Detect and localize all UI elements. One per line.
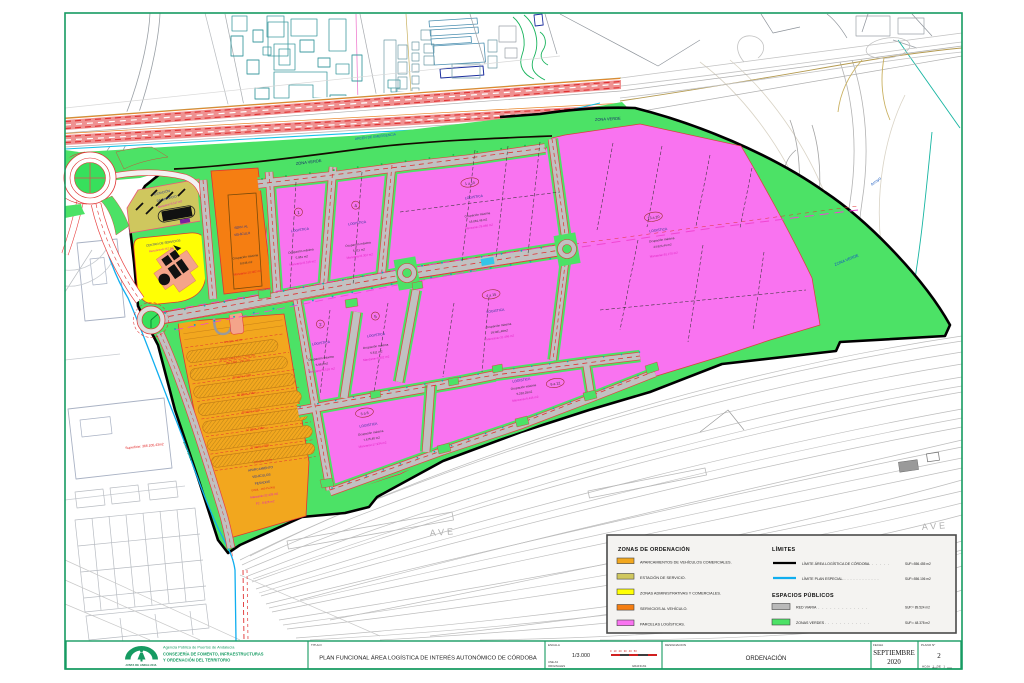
svg-text:APARCAMIENTOS DE VEHÍCULOS COM: APARCAMIENTOS DE VEHÍCULOS COMERCIALES. bbox=[640, 561, 732, 565]
svg-text:PLAN FUNCIONAL ÁREA LOGÍSTICA: PLAN FUNCIONAL ÁREA LOGÍSTICA DE INTERÉS… bbox=[319, 655, 537, 662]
svg-text:ESCALA: ESCALA bbox=[548, 643, 560, 647]
svg-text:SUP.= 89.524 m2: SUP.= 89.524 m2 bbox=[905, 606, 930, 610]
svg-text:ZONAS DE ORDENACIÓN: ZONAS DE ORDENACIÓN bbox=[618, 545, 690, 553]
svg-text:ORDENACIÓN: ORDENACIÓN bbox=[746, 655, 787, 662]
svg-text:2: 2 bbox=[937, 652, 941, 660]
svg-text:DESIGNACION: DESIGNACION bbox=[665, 643, 686, 647]
svg-text:CONSEJERÍA DE FOMENTO, INFRAES: CONSEJERÍA DE FOMENTO, INFRAESTRUCTURAS bbox=[163, 652, 264, 657]
svg-text:AVE: AVE bbox=[921, 520, 948, 532]
svg-text:PLANO N°: PLANO N° bbox=[921, 643, 936, 647]
svg-text:LÍMITE PLAN ESPECIAL. . . .: LÍMITE PLAN ESPECIAL. . . . . . . . . . … bbox=[802, 577, 879, 581]
svg-text:LÍMITE ÁREA LOGÍSTICA DE CÓRDO: LÍMITE ÁREA LOGÍSTICA DE CÓRDOBA. . . . … bbox=[802, 561, 889, 566]
svg-text:FECHA: FECHA bbox=[873, 643, 883, 647]
svg-text:SUP.=556.455 m2: SUP.=556.455 m2 bbox=[905, 562, 931, 566]
svg-text:ZONAS ADMINISTRATIVAS Y COMERC: ZONAS ADMINISTRATIVAS Y COMERCIALES. bbox=[640, 592, 721, 596]
svg-text:SUP.=556.106 m2: SUP.=556.106 m2 bbox=[905, 577, 931, 581]
svg-text:SEPTIEMBRE: SEPTIEMBRE bbox=[873, 650, 915, 657]
svg-text:ESTACIÓN DE SERVICIO.: ESTACIÓN DE SERVICIO. bbox=[640, 575, 686, 580]
svg-text:ZONAS VERDES . . . . .: ZONAS VERDES . . . . . . . . . . . . bbox=[796, 621, 869, 625]
svg-text:SUP.= 48.378 m2: SUP.= 48.378 m2 bbox=[905, 621, 930, 625]
svg-text:Y ORDENACIÓN DEL TERRITORIO: Y ORDENACIÓN DEL TERRITORIO bbox=[163, 658, 231, 663]
svg-text:TITULO: TITULO bbox=[311, 643, 322, 647]
svg-text:SERVICIOS AL VEHÍCULO.: SERVICIOS AL VEHÍCULO. bbox=[640, 607, 687, 611]
svg-text:PARCELAS LOGÍSTICAS.: PARCELAS LOGÍSTICAS. bbox=[640, 623, 685, 627]
svg-text:GRAFICAS: GRAFICAS bbox=[632, 664, 646, 668]
svg-text:Agencia Pública de Puertos de: Agencia Pública de Puertos de Andalucía bbox=[163, 645, 235, 650]
svg-text:ESPACIOS PÚBLICOS: ESPACIOS PÚBLICOS bbox=[772, 592, 834, 599]
svg-text:LÍMITES: LÍMITES bbox=[772, 545, 795, 553]
svg-text:0 10 20 30 40 50: 0 10 20 30 40 50 bbox=[610, 649, 637, 653]
svg-text:AVE: AVE bbox=[429, 526, 456, 538]
svg-text:ORIGINALES: ORIGINALES bbox=[548, 664, 565, 668]
svg-text:1/3.000: 1/3.000 bbox=[572, 653, 590, 659]
svg-text:JUNTA DE ANDALUCIA: JUNTA DE ANDALUCIA bbox=[125, 664, 156, 667]
svg-text:RED VIARIA . . . . .: RED VIARIA . . . . . . . . . . . . . bbox=[796, 606, 867, 610]
svg-text:2020: 2020 bbox=[887, 659, 901, 666]
